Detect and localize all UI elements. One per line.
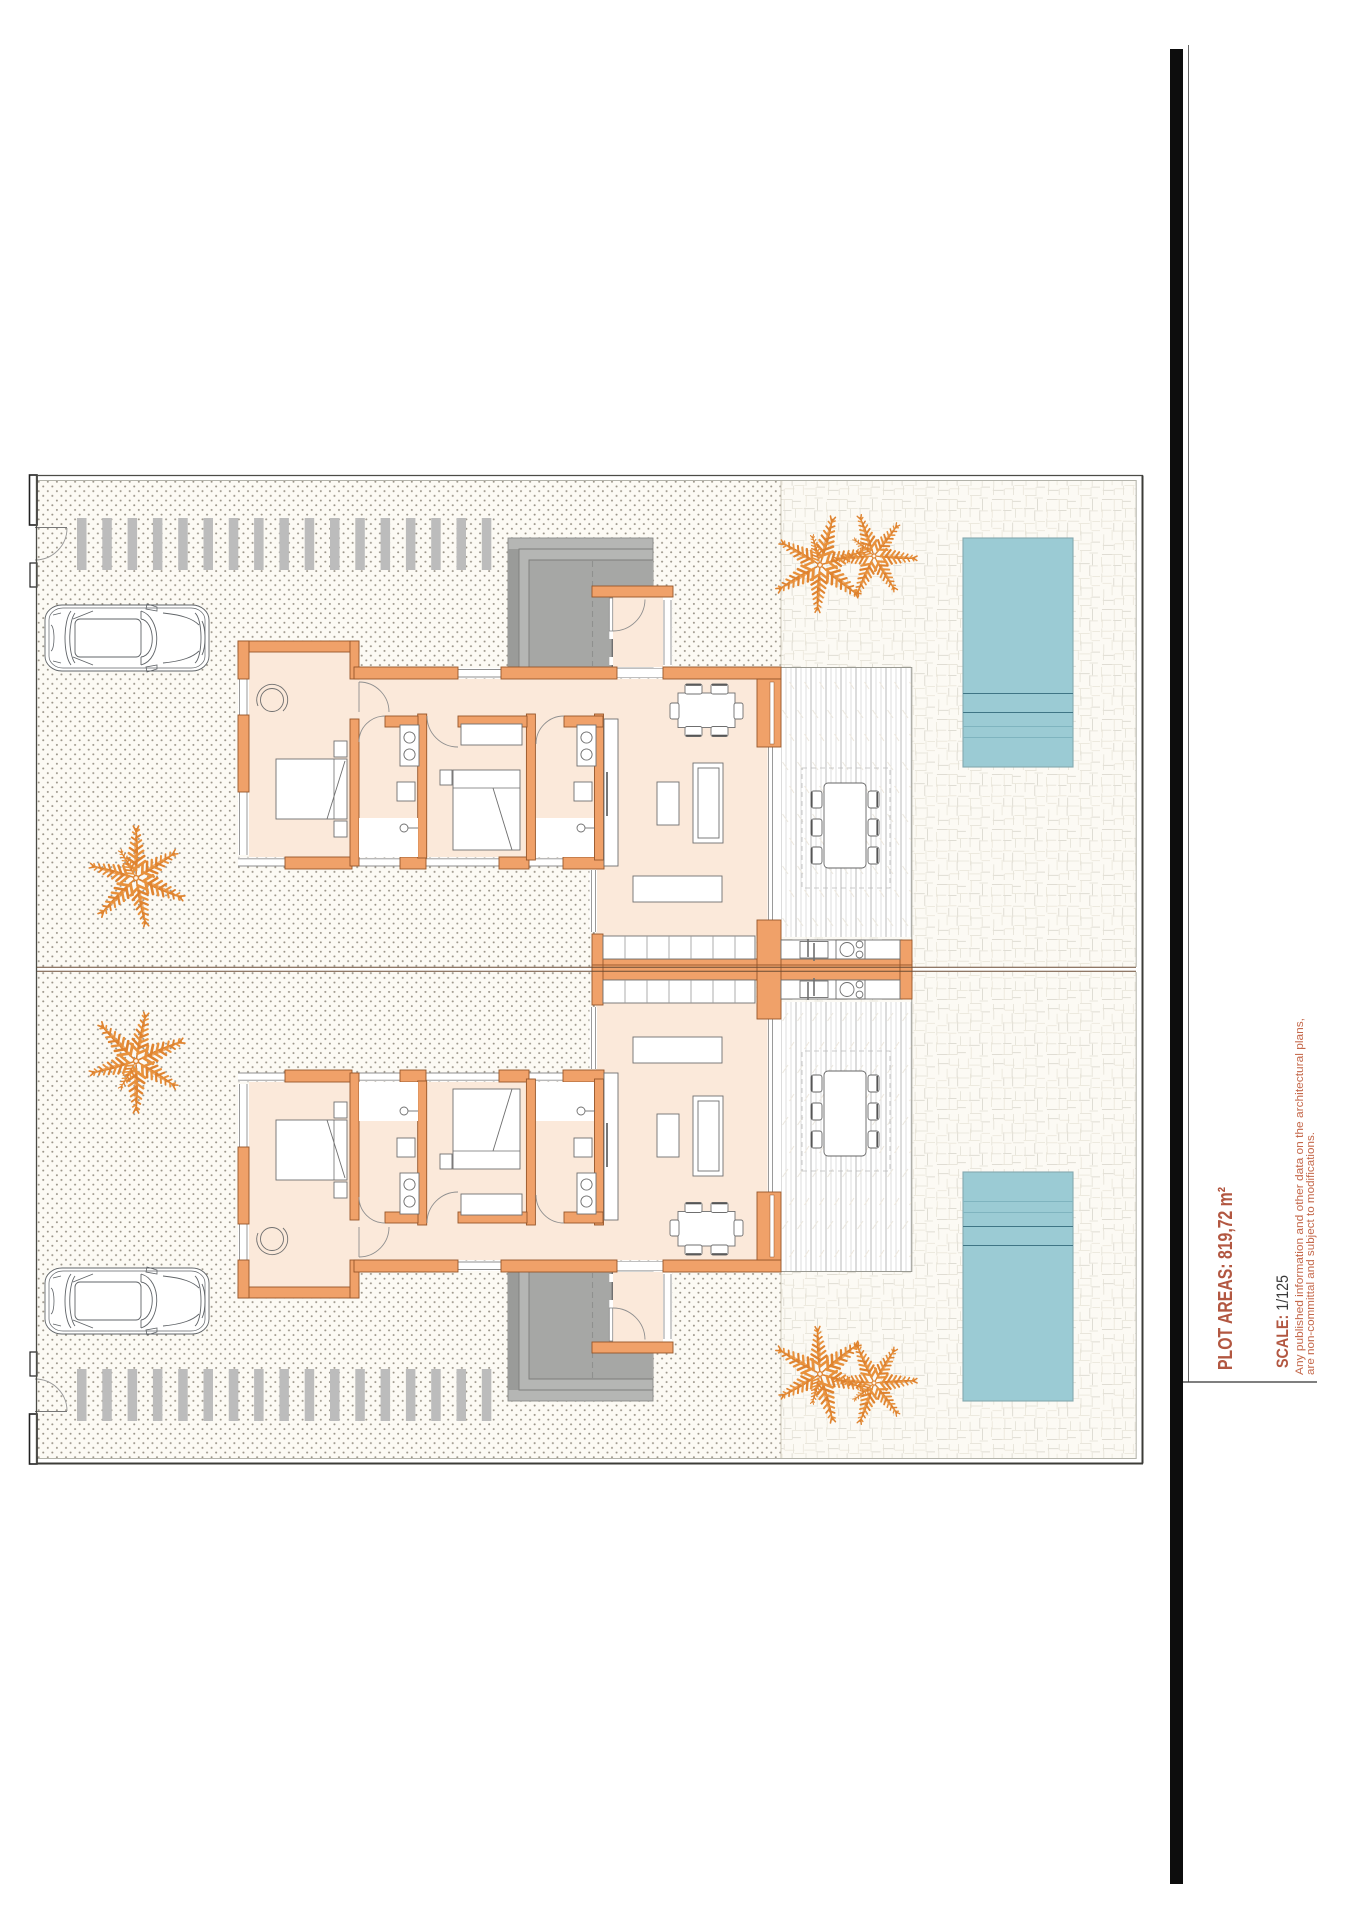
- svg-text:SCALE: 1/125: SCALE: 1/125: [1273, 1275, 1292, 1368]
- svg-text:PLOT AREAS: 819,72 m²: PLOT AREAS: 819,72 m²: [1215, 1187, 1237, 1370]
- svg-text:are non-committal and subject: are non-committal and subject to modific…: [1305, 1132, 1317, 1375]
